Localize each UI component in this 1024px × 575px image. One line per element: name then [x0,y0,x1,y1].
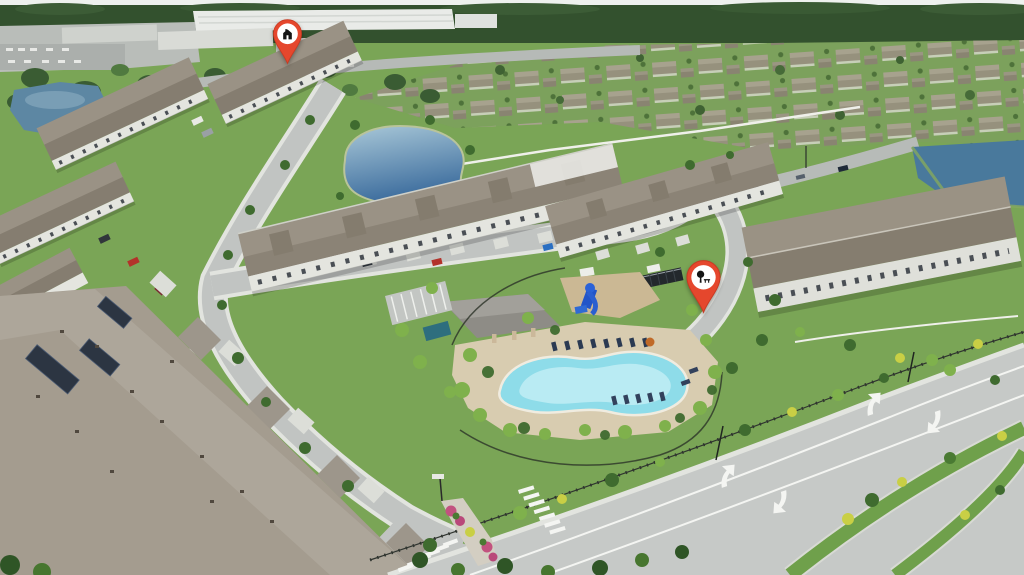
street-sign [432,474,444,479]
amenity-location-pin[interactable] [684,256,723,318]
aerial-scene: Aerial view of a suburban townhome commu… [0,0,1024,575]
home-location-pin[interactable] [271,17,304,67]
amenity-pin-graphic [684,256,723,318]
umbrella [646,338,655,347]
home-pin-graphic [271,17,304,67]
aerial-photo-stage: Aerial view of a suburban townhome commu… [0,0,1024,575]
